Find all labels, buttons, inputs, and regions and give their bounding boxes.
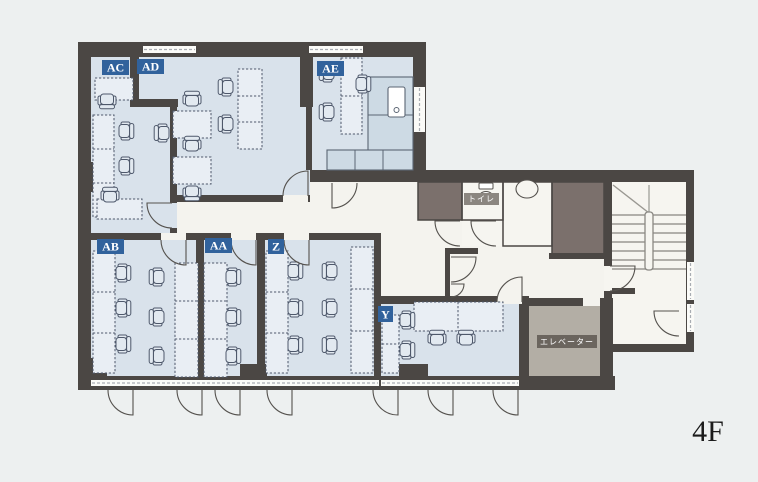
door-swing	[493, 390, 518, 415]
floor-indicator: 4F	[692, 415, 724, 448]
room-ae-label: AE	[322, 62, 339, 76]
room-ac-label: AC	[107, 61, 124, 75]
elevator-label: エレベーター	[540, 338, 594, 347]
toilet-label: トイレ	[468, 195, 495, 204]
floorplan-svg: ACADAEABAAZYトイレエレベーター4F	[0, 0, 758, 482]
room-z-label: Z	[272, 240, 280, 254]
door-swing	[177, 390, 202, 415]
room-ad-label: AD	[142, 60, 160, 74]
door-swing	[215, 390, 240, 415]
room-y-label: Y	[381, 308, 390, 322]
floorplan-canvas: ACADAEABAAZYトイレエレベーター4F	[0, 0, 758, 482]
door-swing	[428, 390, 453, 415]
room-aa-label: AA	[210, 239, 228, 253]
door-swing	[373, 390, 398, 415]
door-swing	[108, 390, 133, 415]
door-swing	[267, 390, 292, 415]
room-ab-label: AB	[102, 240, 119, 254]
sink-icon	[516, 180, 538, 198]
